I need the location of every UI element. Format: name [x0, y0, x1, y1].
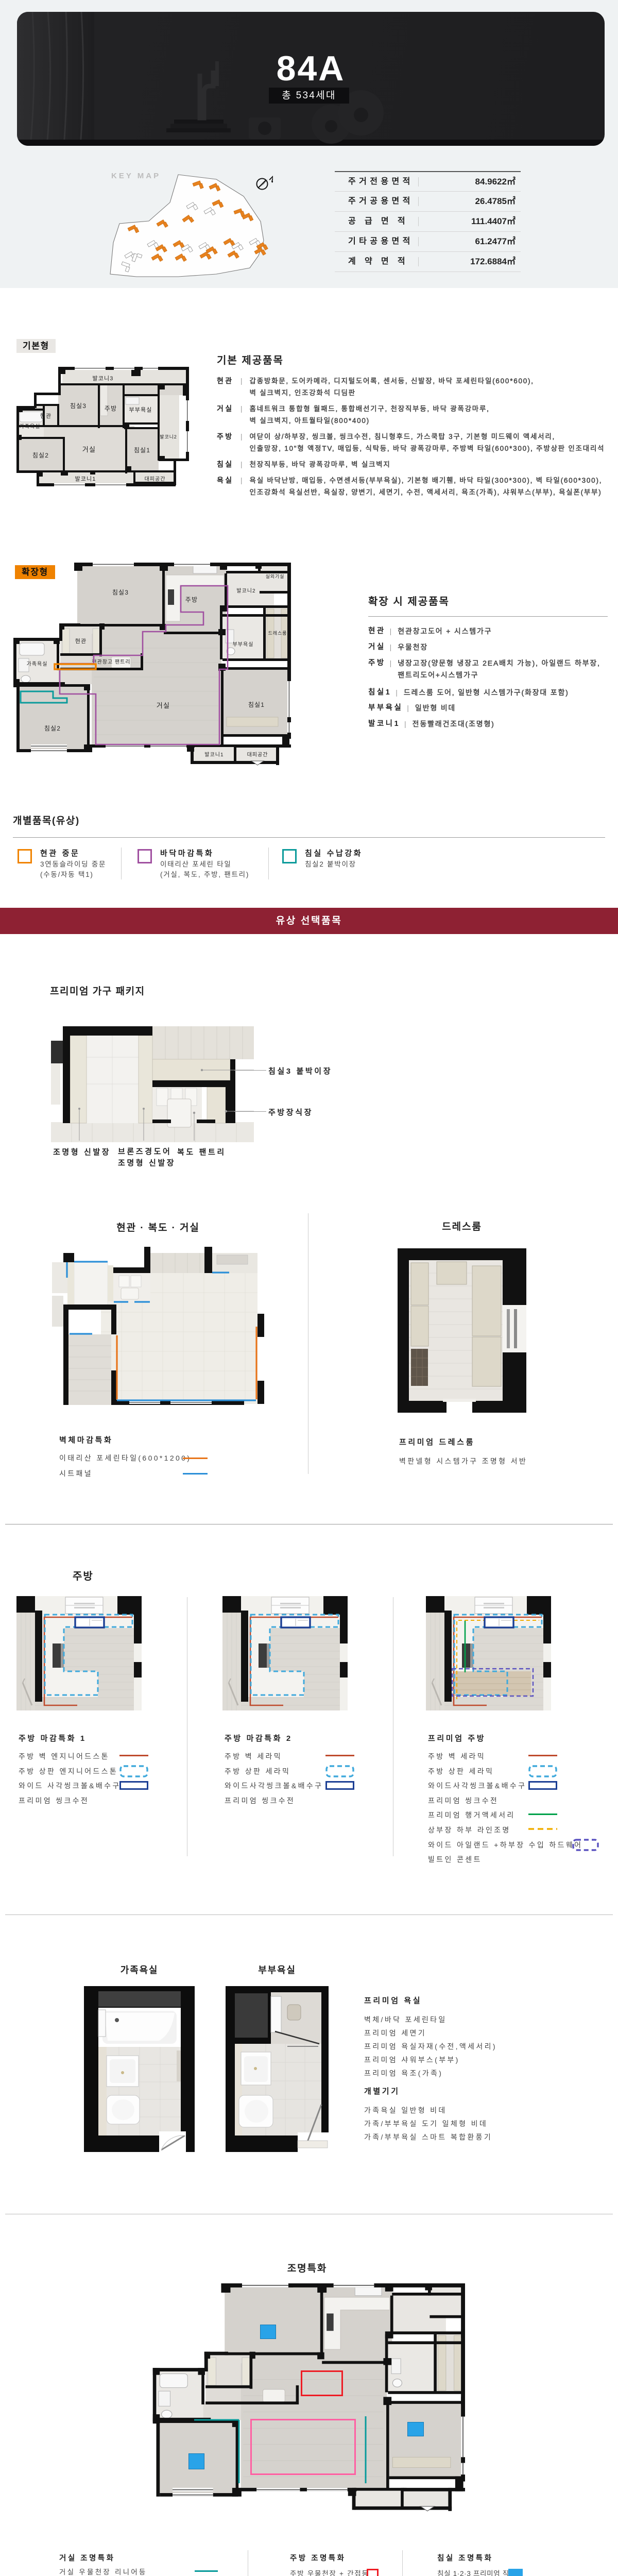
svg-text:N: N [267, 175, 273, 185]
svg-text:현관창고 팬트리: 현관창고 팬트리 [92, 659, 130, 665]
svg-text:발코니2: 발코니2 [236, 588, 255, 594]
svg-text:발코니3: 발코니3 [93, 375, 114, 382]
svg-text:발코니1: 발코니1 [204, 752, 224, 758]
svg-text:대피공간: 대피공간 [247, 752, 268, 758]
svg-text:현관: 현관 [75, 638, 87, 645]
svg-text:부부욕실: 부부욕실 [233, 641, 254, 648]
svg-text:침실1: 침실1 [248, 701, 265, 708]
svg-text:주방: 주방 [105, 405, 117, 412]
svg-text:침실2: 침실2 [32, 452, 49, 459]
svg-text:거실: 거실 [157, 702, 170, 709]
svg-text:발코니2: 발코니2 [160, 434, 177, 439]
svg-text:가족욕실: 가족욕실 [27, 661, 48, 667]
svg-text:실외기실: 실외기실 [266, 573, 285, 579]
svg-text:현관: 현관 [40, 413, 51, 419]
svg-text:대피공간: 대피공간 [145, 476, 166, 482]
svg-text:드레스룸: 드레스룸 [268, 631, 287, 636]
svg-text:거실: 거실 [82, 446, 96, 453]
svg-text:주방: 주방 [185, 596, 198, 603]
svg-text:부부욕실: 부부욕실 [129, 406, 152, 413]
svg-text:침실2: 침실2 [44, 725, 61, 732]
svg-text:침실1: 침실1 [134, 447, 150, 454]
svg-text:침실3: 침실3 [70, 402, 87, 410]
svg-text:침실3: 침실3 [112, 589, 129, 596]
svg-text:발코니1: 발코니1 [75, 476, 96, 482]
svg-text:가족욕실: 가족욕실 [20, 423, 41, 430]
